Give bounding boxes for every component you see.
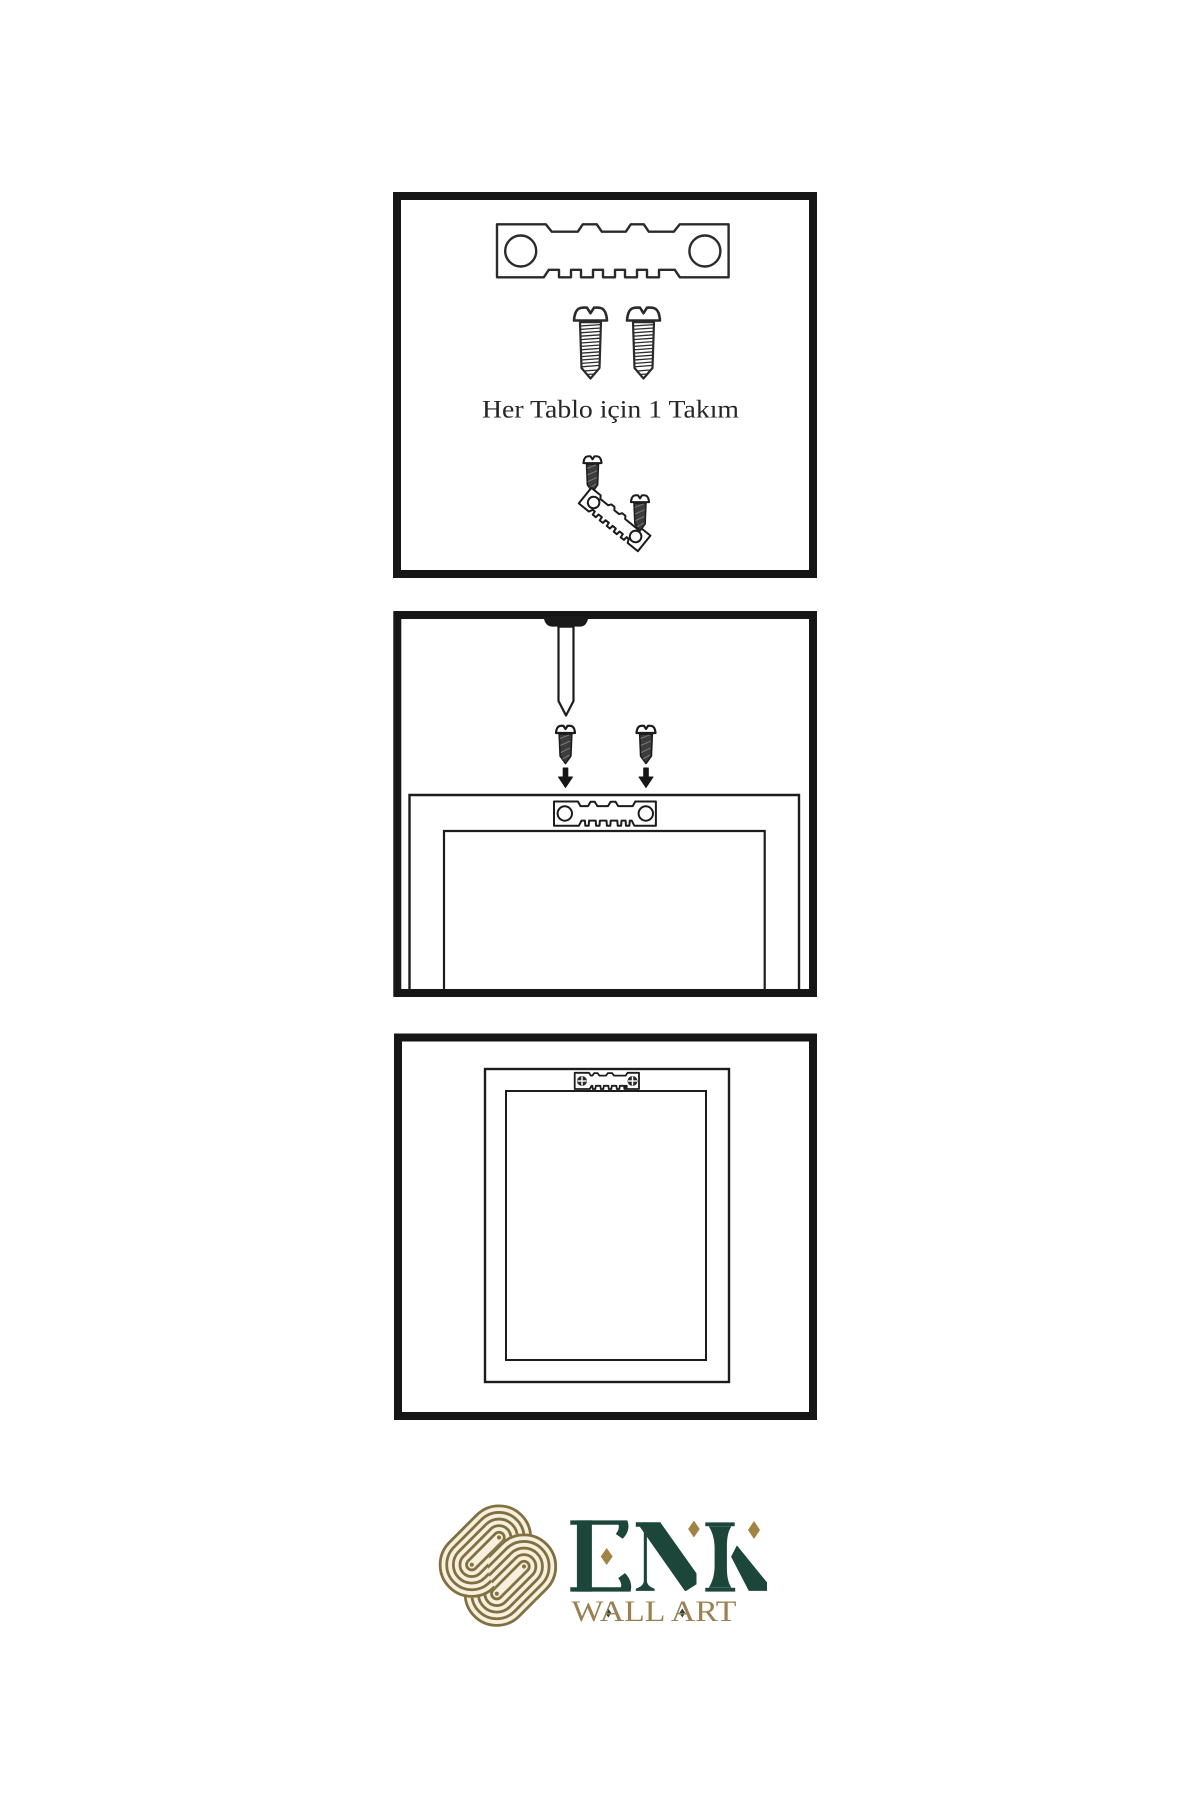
svg-text:WALL ART: WALL ART xyxy=(572,1595,737,1628)
svg-text:Her Tablo için 1 Takım: Her Tablo için 1 Takım xyxy=(482,397,740,424)
